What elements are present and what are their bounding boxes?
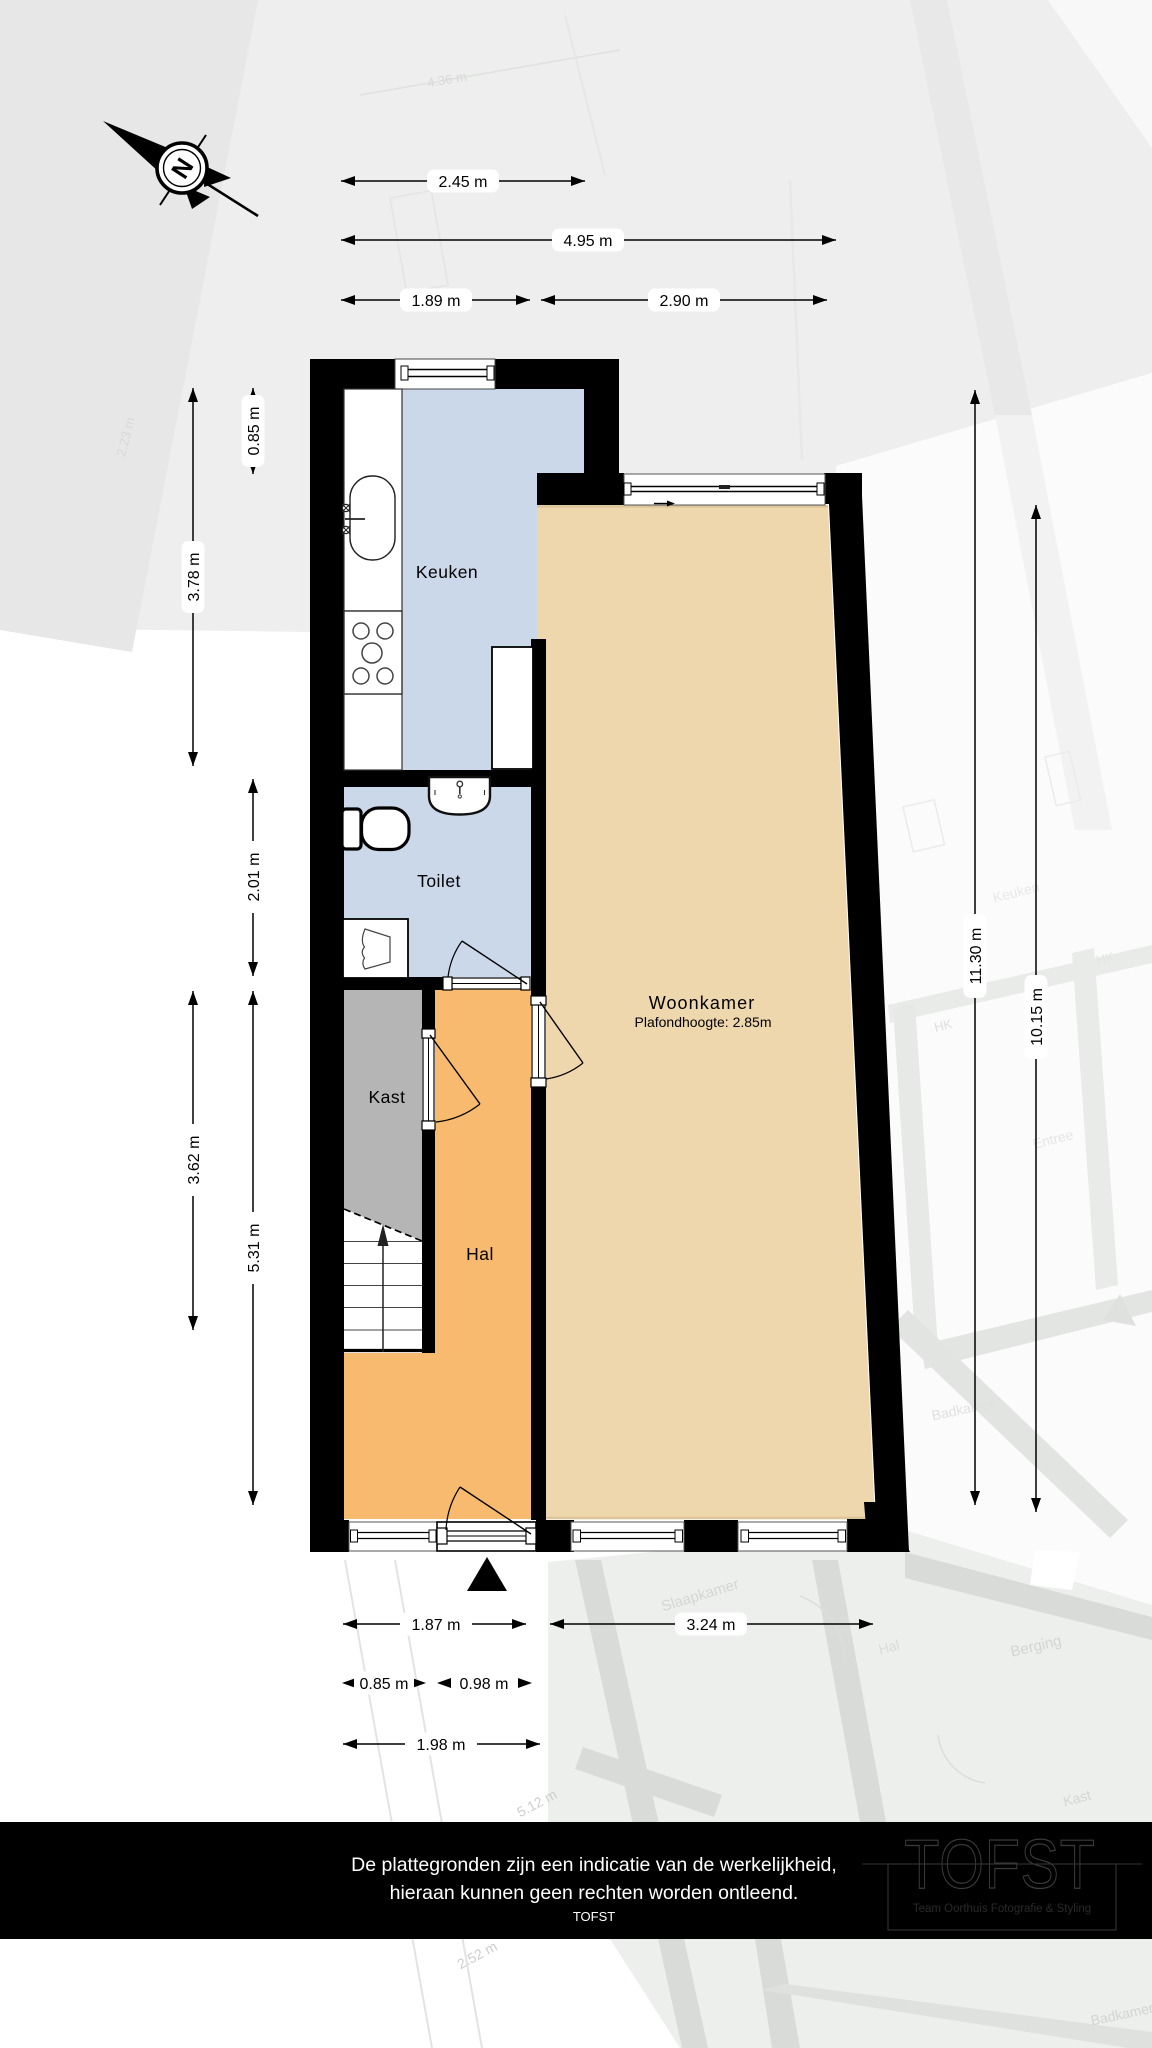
svg-text:3.24 m: 3.24 m <box>687 1617 736 1634</box>
svg-text:Woonkamer: Woonkamer <box>649 993 756 1013</box>
svg-text:0.98 m: 0.98 m <box>460 1676 509 1693</box>
svg-text:1.89 m: 1.89 m <box>412 293 461 310</box>
svg-text:0.85 m: 0.85 m <box>246 407 263 456</box>
svg-text:2.45 m: 2.45 m <box>439 174 488 191</box>
svg-text:2.90 m: 2.90 m <box>660 293 709 310</box>
svg-text:TOFST: TOFST <box>573 1909 615 1924</box>
svg-text:Team Oorthuis Fotografie & Sty: Team Oorthuis Fotografie & Styling <box>913 1903 1091 1915</box>
svg-text:11.30 m: 11.30 m <box>968 928 985 985</box>
svg-text:4.95 m: 4.95 m <box>564 233 613 250</box>
svg-text:De plattegronden zijn een indi: De plattegronden zijn een indicatie van … <box>351 1854 837 1876</box>
svg-text:3.62 m: 3.62 m <box>186 1136 203 1185</box>
svg-text:2.01 m: 2.01 m <box>246 853 263 902</box>
svg-text:Plafondhoogte: 2.85m: Plafondhoogte: 2.85m <box>635 1014 772 1030</box>
svg-text:Kast: Kast <box>368 1087 405 1107</box>
svg-text:Keuken: Keuken <box>416 562 478 582</box>
svg-text:Hal: Hal <box>466 1244 494 1264</box>
svg-text:1.98 m: 1.98 m <box>417 1737 466 1754</box>
svg-text:3.78 m: 3.78 m <box>186 553 203 602</box>
svg-text:hieraan kunnen geen rechten wo: hieraan kunnen geen rechten worden ontle… <box>390 1882 799 1904</box>
svg-text:1.87 m: 1.87 m <box>412 1617 461 1634</box>
svg-text:5.31 m: 5.31 m <box>246 1224 263 1273</box>
svg-text:Toilet: Toilet <box>417 871 461 891</box>
svg-text:10.15 m: 10.15 m <box>1029 988 1046 1046</box>
svg-text:0.85 m: 0.85 m <box>360 1676 409 1693</box>
